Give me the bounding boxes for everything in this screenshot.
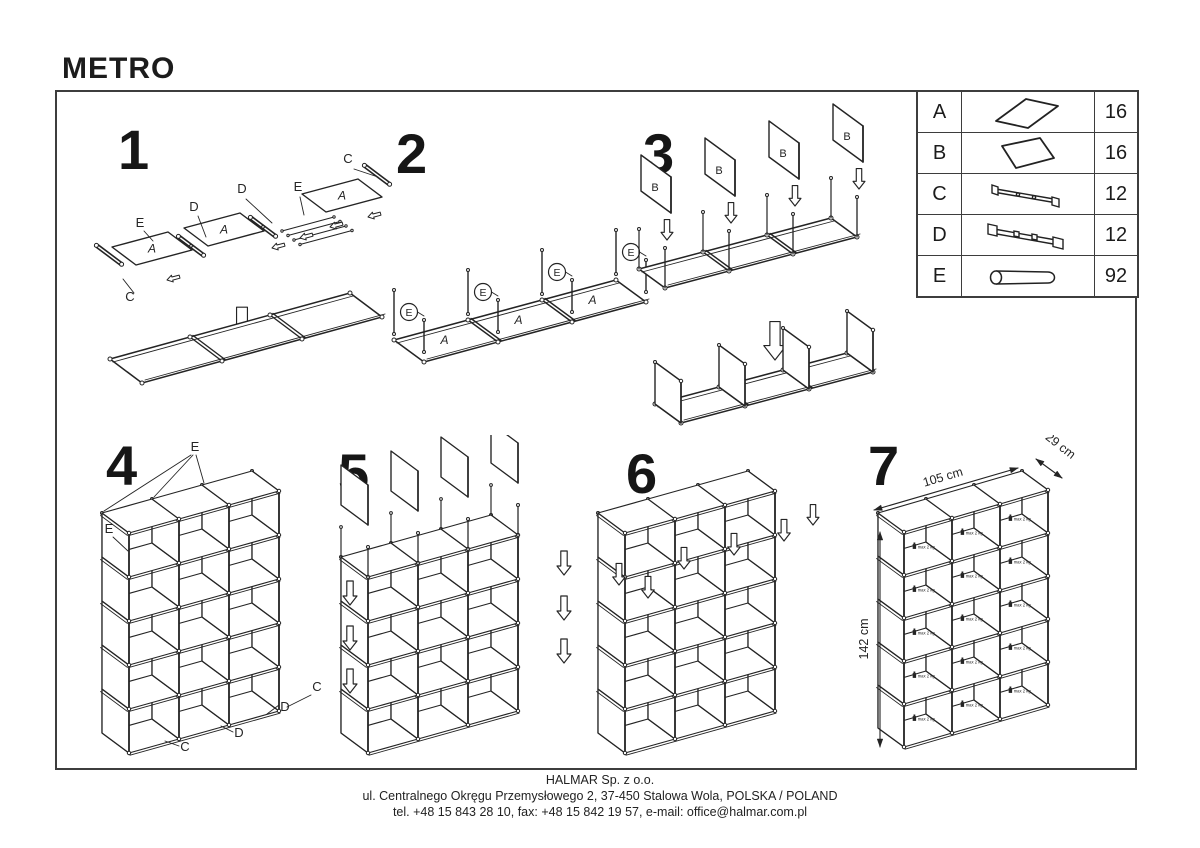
line-art: [902, 659, 905, 662]
line-art: [1009, 602, 1012, 607]
line-art: [673, 561, 676, 564]
line-art: [998, 502, 1001, 505]
line-art: [992, 185, 998, 195]
line-art: [299, 231, 313, 241]
down-arrow-icon: [661, 220, 673, 240]
line-art: [1046, 617, 1049, 620]
line-art: [177, 561, 180, 564]
line-art: [773, 709, 776, 712]
tube-e-label: E: [105, 521, 114, 536]
parts-table-row: C 12: [918, 174, 1137, 215]
line-art: [623, 619, 626, 622]
part-letter: D: [918, 215, 962, 255]
footer-contact: tel. +48 15 843 28 10, fax: +48 15 842 1…: [0, 804, 1200, 820]
line-art: [166, 273, 180, 283]
line-art: [466, 679, 469, 682]
down-arrow-icon: [557, 639, 571, 663]
line-art: [248, 215, 252, 219]
depth-dimension-label: 29 cm: [1043, 435, 1078, 462]
finished-shelf: [877, 470, 1050, 750]
down-arrow-icon: [853, 169, 865, 189]
line-art: [773, 665, 776, 668]
line-art: [380, 315, 384, 319]
line-art: [962, 658, 964, 660]
max-load-label: max 2 kg: [918, 631, 936, 636]
line-art: [497, 299, 500, 302]
line-art: [466, 723, 469, 726]
line-art: [673, 693, 676, 696]
line-art: [351, 229, 353, 231]
part-qty: 16: [1095, 133, 1137, 173]
max-load-label: max 2 kg: [918, 717, 936, 722]
rail-c-label: C: [125, 289, 134, 304]
line-art: [914, 672, 916, 674]
line-art: [277, 621, 280, 624]
line-art: [492, 292, 499, 296]
line-art: [176, 234, 180, 238]
part-qty: 16: [1095, 92, 1137, 132]
parts-table-row: B 16: [918, 133, 1137, 174]
line-art: [1010, 687, 1012, 689]
line-art: [227, 547, 230, 550]
line-art: [1016, 193, 1019, 196]
line-art: [333, 216, 335, 218]
exploded-base: AAACEDDEC: [94, 151, 391, 304]
tube-e-label: E: [627, 247, 634, 259]
line-art: [566, 272, 573, 276]
max-load-label: max 2 kg: [1014, 689, 1032, 694]
line-art: [830, 177, 833, 180]
max-load-label: max 2 kg: [1014, 603, 1032, 608]
line-art: [422, 360, 426, 364]
line-art: [773, 533, 776, 536]
line-art: [416, 649, 419, 652]
panel-b-label: B: [651, 182, 658, 194]
part-letter: E: [918, 256, 962, 296]
line-art: [639, 218, 857, 288]
down-arrow-icon: [789, 186, 801, 206]
line-art: [664, 247, 667, 250]
line-art: [277, 489, 280, 492]
line-art: [94, 243, 98, 247]
rail-c-label: C: [343, 151, 352, 166]
line-art: [516, 577, 519, 580]
panel-b-icon: [962, 133, 1095, 173]
line-art: [655, 362, 681, 423]
base-frame: [653, 351, 876, 425]
step-3-diagram: BBBB: [635, 98, 917, 438]
step-5-diagram: [330, 435, 582, 765]
line-art: [902, 530, 905, 533]
rail-c-label: C: [180, 739, 189, 754]
line-art: [227, 591, 230, 594]
down-arrow-icon: [557, 596, 571, 620]
down-arrow-icon: [807, 505, 819, 525]
line-art: [300, 337, 304, 341]
max-load-label: max 2 kg: [966, 703, 984, 708]
height-dimension-label: 142 cm: [857, 619, 871, 660]
line-art: [723, 547, 726, 550]
line-art: [1046, 488, 1049, 491]
line-art: [418, 312, 425, 316]
step-7-diagram: 105 cm29 cm142 cmmax 2 kgmax 2 kgmax 2 k…: [852, 435, 1136, 767]
insert-arrow-icon: [299, 231, 313, 241]
line-art: [127, 619, 130, 622]
line-art: [614, 278, 618, 282]
line-art: [998, 674, 1001, 677]
line-art: [962, 572, 964, 574]
line-art: [961, 530, 964, 535]
line-art: [177, 693, 180, 696]
line-art: [220, 359, 224, 363]
line-art: [961, 573, 964, 578]
line-art: [728, 230, 731, 233]
line-art: [792, 213, 795, 216]
line-art: [392, 338, 396, 342]
step-2-diagram: AAAEEEE: [390, 222, 672, 382]
panel-a-icon: [962, 92, 1095, 132]
line-art: [998, 545, 1001, 548]
line-art: [1036, 459, 1044, 466]
line-art: [673, 737, 676, 740]
line-art: [391, 451, 418, 511]
line-art: [440, 498, 443, 501]
line-art: [393, 289, 396, 292]
line-art: [998, 588, 1001, 591]
line-art: [571, 311, 574, 314]
down-arrow-icon: [725, 203, 737, 223]
line-art: [723, 679, 726, 682]
part-qty: 12: [1095, 215, 1137, 255]
line-art: [490, 484, 493, 487]
line-art: [1009, 559, 1012, 564]
tube-e-label: E: [136, 215, 145, 230]
line-art: [108, 357, 112, 361]
line-art: [871, 328, 874, 331]
parts-table-row: D 12: [918, 215, 1137, 256]
instruction-sheet: METRO 1 2 3 4 5 6 7 A 16 B 16 C: [0, 0, 1200, 848]
line-art: [227, 679, 230, 682]
line-art: [516, 621, 519, 624]
line-art: [366, 619, 369, 622]
line-art: [388, 182, 392, 186]
line-art: [723, 723, 726, 726]
line-art: [962, 529, 964, 531]
max-load-label: max 2 kg: [966, 531, 984, 536]
line-art: [661, 220, 673, 240]
line-art: [638, 228, 641, 231]
line-art: [227, 635, 230, 638]
rail-c-icon: [962, 174, 1095, 214]
line-art: [874, 505, 882, 510]
max-load-label: max 2 kg: [966, 574, 984, 579]
line-art: [120, 262, 124, 266]
line-art: [902, 702, 905, 705]
step-1-diagram: AAACEDDEC: [90, 115, 405, 415]
line-art: [293, 239, 295, 241]
line-art: [423, 351, 426, 354]
line-art: [914, 715, 916, 717]
line-art: [807, 345, 810, 348]
line-art: [541, 249, 544, 252]
line-art: [177, 649, 180, 652]
line-art: [1054, 471, 1062, 478]
line-art: [673, 517, 676, 520]
line-art: [615, 229, 618, 232]
line-art: [913, 587, 916, 592]
line-art: [1032, 234, 1037, 240]
max-load-label: max 2 kg: [918, 545, 936, 550]
line-art: [571, 279, 574, 282]
line-art: [778, 519, 791, 541]
line-art: [773, 577, 776, 580]
line-art: [998, 631, 1001, 634]
line-art: [127, 751, 130, 754]
max-load-label: max 2 kg: [1014, 560, 1032, 565]
rail-d-label: D: [189, 199, 198, 214]
part-qty: 92: [1095, 256, 1137, 296]
line-art: [655, 353, 873, 423]
line-art: [288, 222, 340, 236]
line-art: [345, 225, 347, 227]
line-art: [540, 298, 544, 302]
panel-b-label: B: [843, 131, 850, 143]
line-art: [1046, 531, 1049, 534]
line-art: [127, 575, 130, 578]
line-art: [853, 169, 865, 189]
line-art: [914, 543, 916, 545]
line-art: [723, 503, 726, 506]
max-load-label: max 2 kg: [1014, 646, 1032, 651]
panel-a-label: A: [439, 333, 448, 347]
line-art: [1002, 138, 1054, 168]
line-art: [673, 649, 676, 652]
line-art: [466, 635, 469, 638]
line-art: [991, 271, 1002, 284]
line-art: [623, 751, 626, 754]
line-art: [366, 751, 369, 754]
line-art: [262, 225, 265, 228]
line-art: [623, 707, 626, 710]
line-art: [992, 185, 1059, 207]
line-art: [366, 663, 369, 666]
line-art: [913, 716, 916, 721]
step-6-diagram: [585, 435, 850, 765]
line-art: [673, 605, 676, 608]
line-art: [1010, 601, 1012, 603]
line-art: [277, 665, 280, 668]
line-art: [190, 244, 193, 247]
line-art: [623, 531, 626, 534]
line-art: [268, 313, 272, 317]
line-art: [1032, 196, 1035, 199]
line-art: [950, 688, 953, 691]
line-art: [287, 234, 289, 236]
depth-dimension: 29 cm: [1036, 435, 1078, 478]
down-arrow-icon: [778, 519, 791, 541]
rail-d-icon: [962, 215, 1095, 255]
line-art: [570, 320, 574, 324]
line-art: [1010, 515, 1012, 517]
line-art: [950, 731, 953, 734]
line-art: [962, 701, 964, 703]
line-art: [902, 745, 905, 748]
line-art: [466, 591, 469, 594]
line-art: [496, 340, 500, 344]
line-art: [913, 630, 916, 635]
line-art: [1009, 688, 1012, 693]
line-art: [789, 186, 801, 206]
line-art: [416, 737, 419, 740]
panel-b-label: B: [779, 148, 786, 160]
line-art: [718, 344, 721, 347]
line-art: [773, 621, 776, 624]
line-art: [196, 455, 204, 483]
base-frame: AAA: [392, 278, 649, 364]
line-art: [1053, 237, 1063, 249]
line-art: [140, 381, 144, 385]
insert-arrow-icon: [166, 273, 180, 283]
line-art: [362, 163, 366, 167]
line-art: [950, 559, 953, 562]
line-art: [988, 224, 1063, 249]
panel-a-label: A: [337, 189, 346, 203]
line-art: [654, 361, 657, 364]
max-load-label: max 2 kg: [966, 660, 984, 665]
down-arrow-icon: [557, 551, 571, 575]
rail-d-label: D: [234, 725, 243, 740]
line-art: [367, 546, 370, 549]
tube-e-label: E: [479, 287, 486, 299]
page-title: METRO: [62, 52, 175, 86]
rail-c-label: C: [312, 679, 321, 694]
line-art: [950, 602, 953, 605]
line-art: [996, 271, 1055, 284]
line-art: [913, 544, 916, 549]
line-art: [1010, 644, 1012, 646]
panel-b-label: B: [715, 165, 722, 177]
panel-a-label: A: [219, 223, 228, 237]
tube-e-label: E: [405, 307, 412, 319]
line-art: [782, 327, 785, 330]
line-art: [773, 489, 776, 492]
line-art: [127, 663, 130, 666]
line-art: [725, 203, 737, 223]
shelf-stack: [340, 514, 520, 756]
line-art: [227, 503, 230, 506]
line-art: [557, 551, 571, 575]
line-art: [702, 211, 705, 214]
parts-table-row: A 16: [918, 92, 1137, 133]
base-frame: [108, 291, 385, 385]
line-art: [950, 516, 953, 519]
line-art: [1009, 516, 1012, 521]
line-art: [807, 505, 819, 525]
line-art: [393, 333, 396, 336]
shelf-top-placement: [597, 470, 777, 756]
line-art: [723, 635, 726, 638]
line-art: [516, 709, 519, 712]
footer-address: ul. Centralnego Okręgu Przemysłowego 2, …: [0, 788, 1200, 804]
line-art: [188, 335, 192, 339]
line-art: [271, 241, 285, 251]
line-art: [467, 313, 470, 316]
line-art: [516, 665, 519, 668]
line-art: [961, 616, 964, 621]
line-art: [877, 739, 883, 747]
line-art: [1052, 197, 1059, 207]
line-art: [962, 615, 964, 617]
line-art: [950, 645, 953, 648]
line-art: [282, 217, 334, 231]
tube-e-icon: [962, 256, 1095, 296]
line-art: [177, 517, 180, 520]
line-art: [988, 224, 997, 236]
line-art: [299, 243, 301, 245]
line-art: [846, 310, 849, 313]
line-art: [416, 605, 419, 608]
part-qty: 12: [1095, 174, 1137, 214]
line-art: [467, 269, 470, 272]
line-art: [466, 318, 470, 322]
max-load-label: max 2 kg: [1014, 517, 1032, 522]
line-art: [367, 210, 381, 220]
line-art: [517, 504, 520, 507]
insert-arrow-icon: [271, 241, 285, 251]
line-art: [856, 196, 859, 199]
line-art: [127, 531, 130, 534]
line-art: [491, 435, 518, 483]
max-load-label: max 2 kg: [918, 674, 936, 679]
line-art: [1046, 574, 1049, 577]
line-art: [341, 465, 368, 525]
parts-table-row: E 92: [918, 256, 1137, 296]
line-art: [110, 293, 382, 383]
line-art: [467, 518, 470, 521]
line-art: [363, 166, 388, 185]
line-art: [914, 586, 916, 588]
line-art: [227, 723, 230, 726]
line-art: [274, 234, 278, 238]
part-letter: A: [918, 92, 962, 132]
line-art: [996, 99, 1058, 128]
panel-a-label: A: [513, 313, 522, 327]
max-load-label: max 2 kg: [918, 588, 936, 593]
tube-e-label: E: [553, 267, 560, 279]
rail-d-label: D: [237, 181, 246, 196]
line-art: [1010, 558, 1012, 560]
line-art: [913, 673, 916, 678]
step-4-diagram: EECDDC: [95, 435, 350, 765]
tube-e-label: E: [294, 179, 303, 194]
line-art: [557, 639, 571, 663]
line-art: [497, 331, 500, 334]
line-art: [623, 663, 626, 666]
line-art: [615, 273, 618, 276]
line-art: [557, 596, 571, 620]
line-art: [914, 629, 916, 631]
line-art: [902, 573, 905, 576]
line-art: [287, 695, 311, 707]
line-art: [202, 253, 206, 257]
line-art: [390, 512, 393, 515]
line-art: [1046, 660, 1049, 663]
part-letter: B: [918, 133, 962, 173]
shelf-assembly: [101, 470, 281, 756]
line-art: [340, 526, 343, 529]
line-art: [1046, 703, 1049, 706]
line-art: [766, 194, 769, 197]
